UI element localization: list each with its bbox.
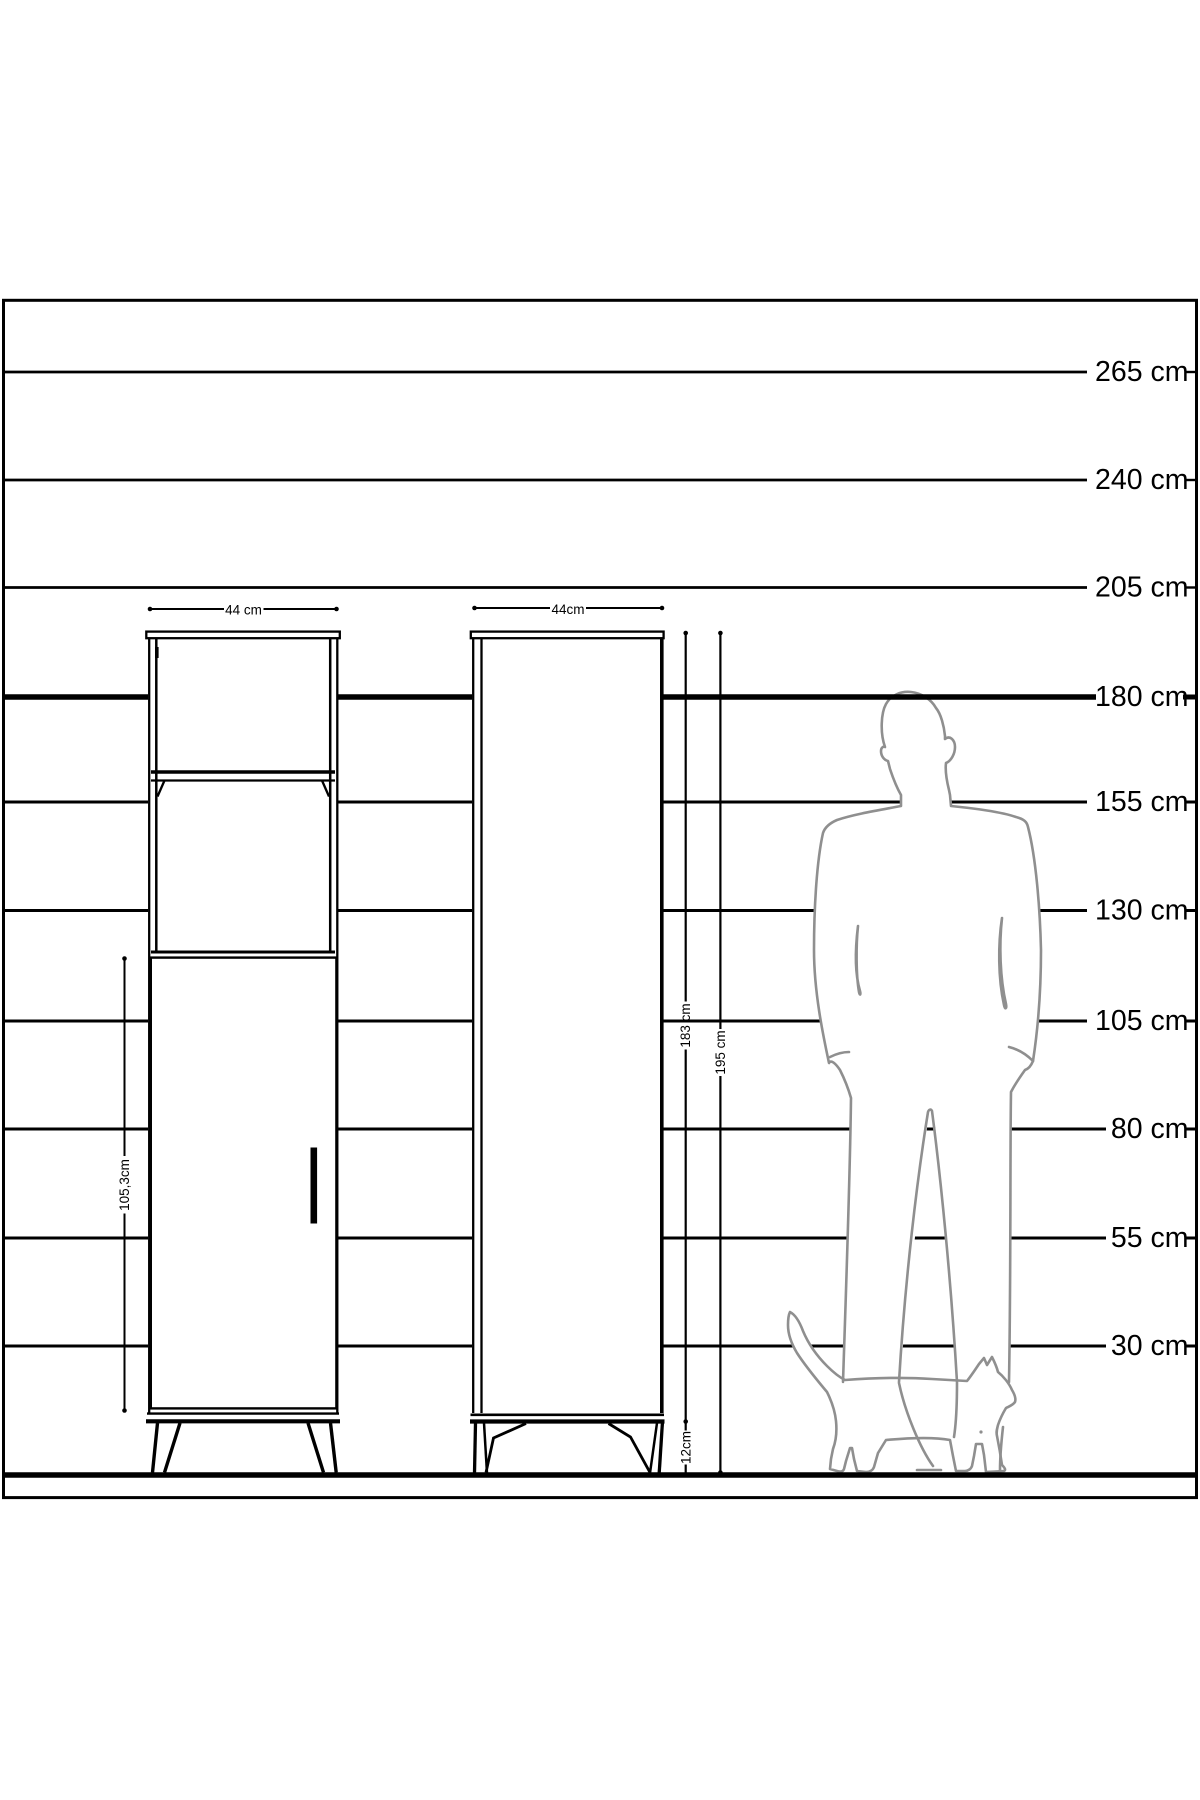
svg-text:180 cm: 180 cm bbox=[1095, 681, 1188, 713]
svg-text:80 cm: 80 cm bbox=[1111, 1113, 1189, 1145]
svg-text:105,3cm: 105,3cm bbox=[117, 1159, 132, 1211]
svg-text:205 cm: 205 cm bbox=[1095, 572, 1188, 604]
svg-text:44 cm: 44 cm bbox=[225, 603, 262, 618]
svg-text:55 cm: 55 cm bbox=[1111, 1222, 1189, 1254]
svg-text:195 cm: 195 cm bbox=[713, 1030, 728, 1074]
svg-text:30 cm: 30 cm bbox=[1111, 1330, 1189, 1362]
svg-text:183 cm: 183 cm bbox=[678, 1003, 693, 1047]
svg-text:12cm: 12cm bbox=[679, 1431, 694, 1464]
svg-text:105 cm: 105 cm bbox=[1095, 1005, 1188, 1037]
svg-text:155 cm: 155 cm bbox=[1095, 786, 1188, 818]
svg-text:265 cm: 265 cm bbox=[1095, 356, 1188, 388]
svg-text:44cm: 44cm bbox=[551, 602, 584, 617]
svg-text:130 cm: 130 cm bbox=[1095, 895, 1188, 927]
svg-text:240 cm: 240 cm bbox=[1095, 464, 1188, 496]
